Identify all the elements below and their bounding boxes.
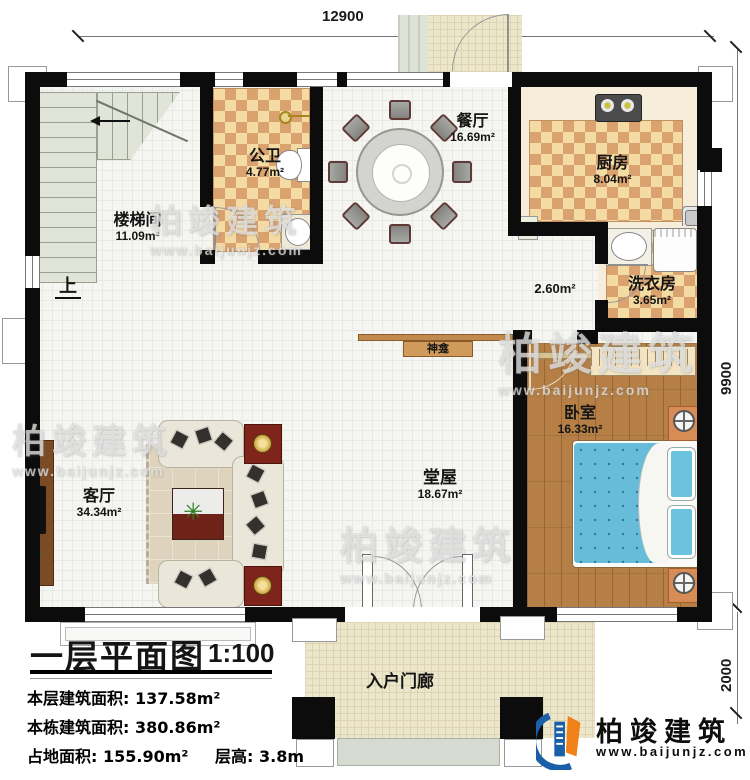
stat-label: 占地面积: [27, 747, 97, 766]
room-name: 堂屋 [395, 468, 485, 488]
room-name: 客厅 [55, 488, 143, 506]
washing-machine [653, 228, 697, 272]
room-label-laundry: 洗衣房 3.65m² [608, 276, 696, 308]
corridor-area-label: 2.60m² [520, 282, 590, 297]
room-name: 洗衣房 [608, 276, 696, 294]
up-label: 上 [55, 276, 81, 299]
entry-opening [345, 607, 480, 622]
shrine-shelf [358, 334, 513, 341]
room-area: 8.04m² [570, 173, 655, 187]
title-underline-thick [30, 670, 272, 674]
door-opening [450, 72, 512, 87]
dim-tick [730, 41, 743, 54]
window [347, 72, 443, 87]
shrine-label: 神龛 [427, 343, 449, 355]
window [85, 607, 245, 622]
towel-bar [288, 115, 312, 117]
porch-step [337, 738, 500, 766]
wardrobe-rack [590, 346, 696, 376]
room-name: 楼梯间 [95, 212, 180, 230]
room-label-porch: 入户门廊 [335, 672, 465, 692]
room-area: 16.69m² [430, 131, 515, 145]
window [215, 72, 243, 87]
wall-laundry-left [595, 222, 608, 264]
room-label-kitchen: 厨房 8.04m² [570, 155, 655, 187]
staircase-lower-run [33, 92, 97, 283]
room-label-bedroom: 卧室 16.33m² [535, 405, 625, 437]
door-leaf [214, 207, 216, 252]
logo-url: www.baijunjz.com [596, 744, 748, 759]
porch-column-outline [500, 616, 545, 640]
wall-laundry-bottom [595, 318, 712, 332]
window [297, 72, 337, 87]
back-porch-stripes [398, 15, 428, 72]
room-area: 34.34m² [55, 506, 143, 520]
porch-column [292, 697, 335, 739]
stat-value: 155.90m² [103, 747, 188, 766]
dim-top-value: 12900 [322, 8, 364, 25]
entry-door-leaf [462, 554, 473, 610]
pillow [668, 448, 695, 500]
floor-plan-sheet: 12900 9900 2000 上 [0, 0, 750, 780]
towel-ring [279, 111, 292, 124]
wall-bath-bottom [200, 250, 215, 264]
room-area: 4.77m² [225, 166, 305, 180]
wall-bedroom-top [577, 330, 598, 344]
dining-chair [328, 161, 348, 183]
pillow [668, 506, 695, 558]
room-name: 公卫 [225, 148, 305, 166]
up-text: 上 [59, 276, 77, 296]
door-leaf [608, 264, 648, 266]
dim-line-top [78, 36, 714, 37]
stat-building-area: 本栋建筑面积: 380.86m² [27, 714, 220, 738]
room-label-dining: 餐厅 16.69m² [430, 113, 515, 145]
door-leaf [529, 344, 531, 390]
dining-chair [452, 161, 472, 183]
window [25, 256, 40, 288]
stat-floor-area: 本层建筑面积: 137.58m² [27, 685, 220, 709]
stair-direction-arrow [100, 120, 130, 122]
stat-footprint-area: 占地面积: 155.90m² [27, 743, 188, 767]
logo-icon [536, 708, 590, 775]
stat-label: 层高: [215, 747, 253, 766]
dim-right-value: 9900 [718, 335, 735, 395]
room-name: 厨房 [570, 155, 655, 173]
stat-label: 本层建筑面积: [27, 689, 129, 708]
room-area: 16.33m² [535, 423, 625, 437]
dim-porch-value: 2000 [718, 640, 735, 692]
dining-chair [389, 224, 411, 244]
nightstand-lamp [673, 410, 695, 432]
wall-kitchen-left [508, 87, 521, 236]
sofa-bottom [158, 560, 244, 608]
logo: 柏竣建筑 www.baijunjz.com [536, 706, 746, 770]
room-name: 餐厅 [430, 113, 515, 131]
room-label-bath: 公卫 4.77m² [225, 148, 305, 180]
window [697, 170, 712, 206]
wall-bath-right [310, 87, 323, 264]
sofa-cushion [251, 543, 268, 560]
stat-label: 本栋建筑面积: [27, 718, 129, 737]
stove-burner [601, 99, 614, 112]
porch-column-outline [292, 618, 337, 642]
stat-storey-height: 层高: 3.8m [215, 743, 304, 767]
coffee-table-plant: ✳ [183, 498, 203, 527]
window [557, 607, 677, 622]
nightstand-lamp [673, 572, 695, 594]
dining-table-center [392, 164, 412, 184]
room-name: 入户门廊 [335, 672, 465, 692]
room-area: 11.09m² [95, 230, 180, 244]
room-label-living: 客厅 34.34m² [55, 488, 143, 520]
stat-value: 137.58m² [135, 689, 220, 708]
dining-chair [389, 100, 411, 120]
laundry-basin [611, 232, 647, 261]
room-label-stair: 楼梯间 11.09m² [95, 212, 180, 244]
entry-door-leaf [362, 554, 373, 610]
stat-value: 380.86m² [135, 718, 220, 737]
wall-left [25, 72, 40, 622]
bath-sink [285, 218, 311, 246]
room-area: 3.65m² [608, 294, 696, 308]
title-underline-thin [30, 678, 272, 679]
dim-line-right [737, 50, 738, 610]
room-area: 18.67m² [395, 488, 485, 502]
side-table-lamp [253, 434, 272, 453]
shrine-box: 神龛 [403, 341, 473, 357]
stat-value: 3.8m [259, 747, 304, 766]
side-table-lamp [253, 576, 272, 595]
wall-bedroom-left [513, 330, 527, 607]
plan-scale: 1:100 [208, 638, 275, 669]
stove-burner [621, 99, 634, 112]
room-label-hall: 堂屋 18.67m² [395, 468, 485, 501]
room-area: 2.60m² [520, 282, 590, 297]
window [67, 72, 180, 87]
wall-bath-left [200, 87, 213, 207]
plan-scale-text: 1:100 [208, 638, 275, 668]
wall-kitchen-bottom [508, 222, 598, 236]
room-name: 卧室 [535, 405, 625, 423]
door-leaf [507, 14, 509, 72]
stair-arrow-head [90, 116, 100, 126]
wall-pier [700, 148, 722, 172]
